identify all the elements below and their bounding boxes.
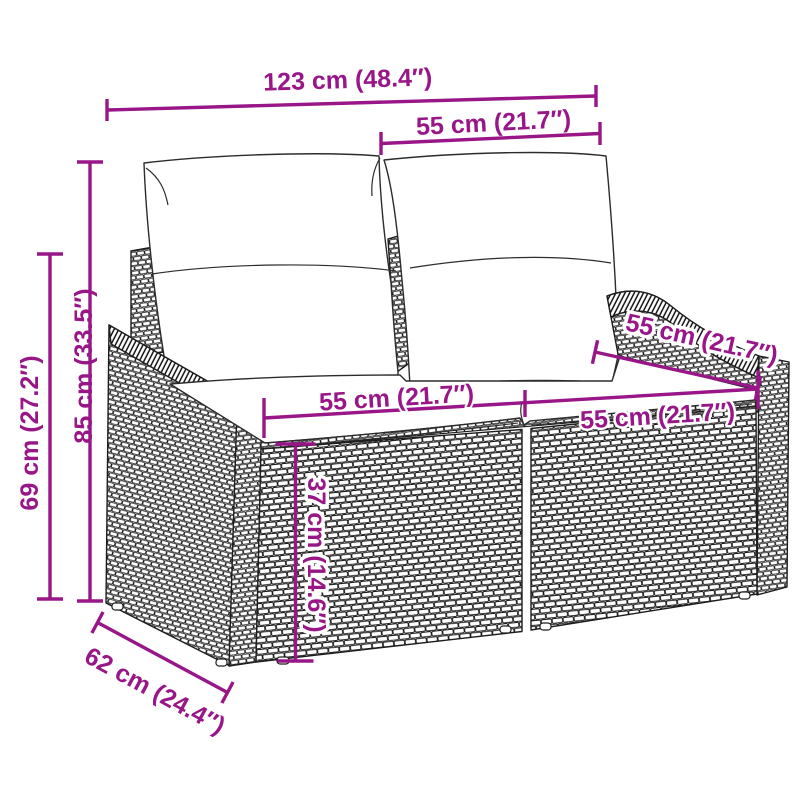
svg-text:37 cm (14.6″): 37 cm (14.6″) (302, 477, 330, 632)
svg-text:69 cm (27.2″): 69 cm (27.2″) (16, 355, 44, 510)
svg-text:123 cm (48.4″): 123 cm (48.4″) (263, 63, 433, 96)
svg-text:85 cm (33.5″): 85 cm (33.5″) (70, 288, 98, 443)
